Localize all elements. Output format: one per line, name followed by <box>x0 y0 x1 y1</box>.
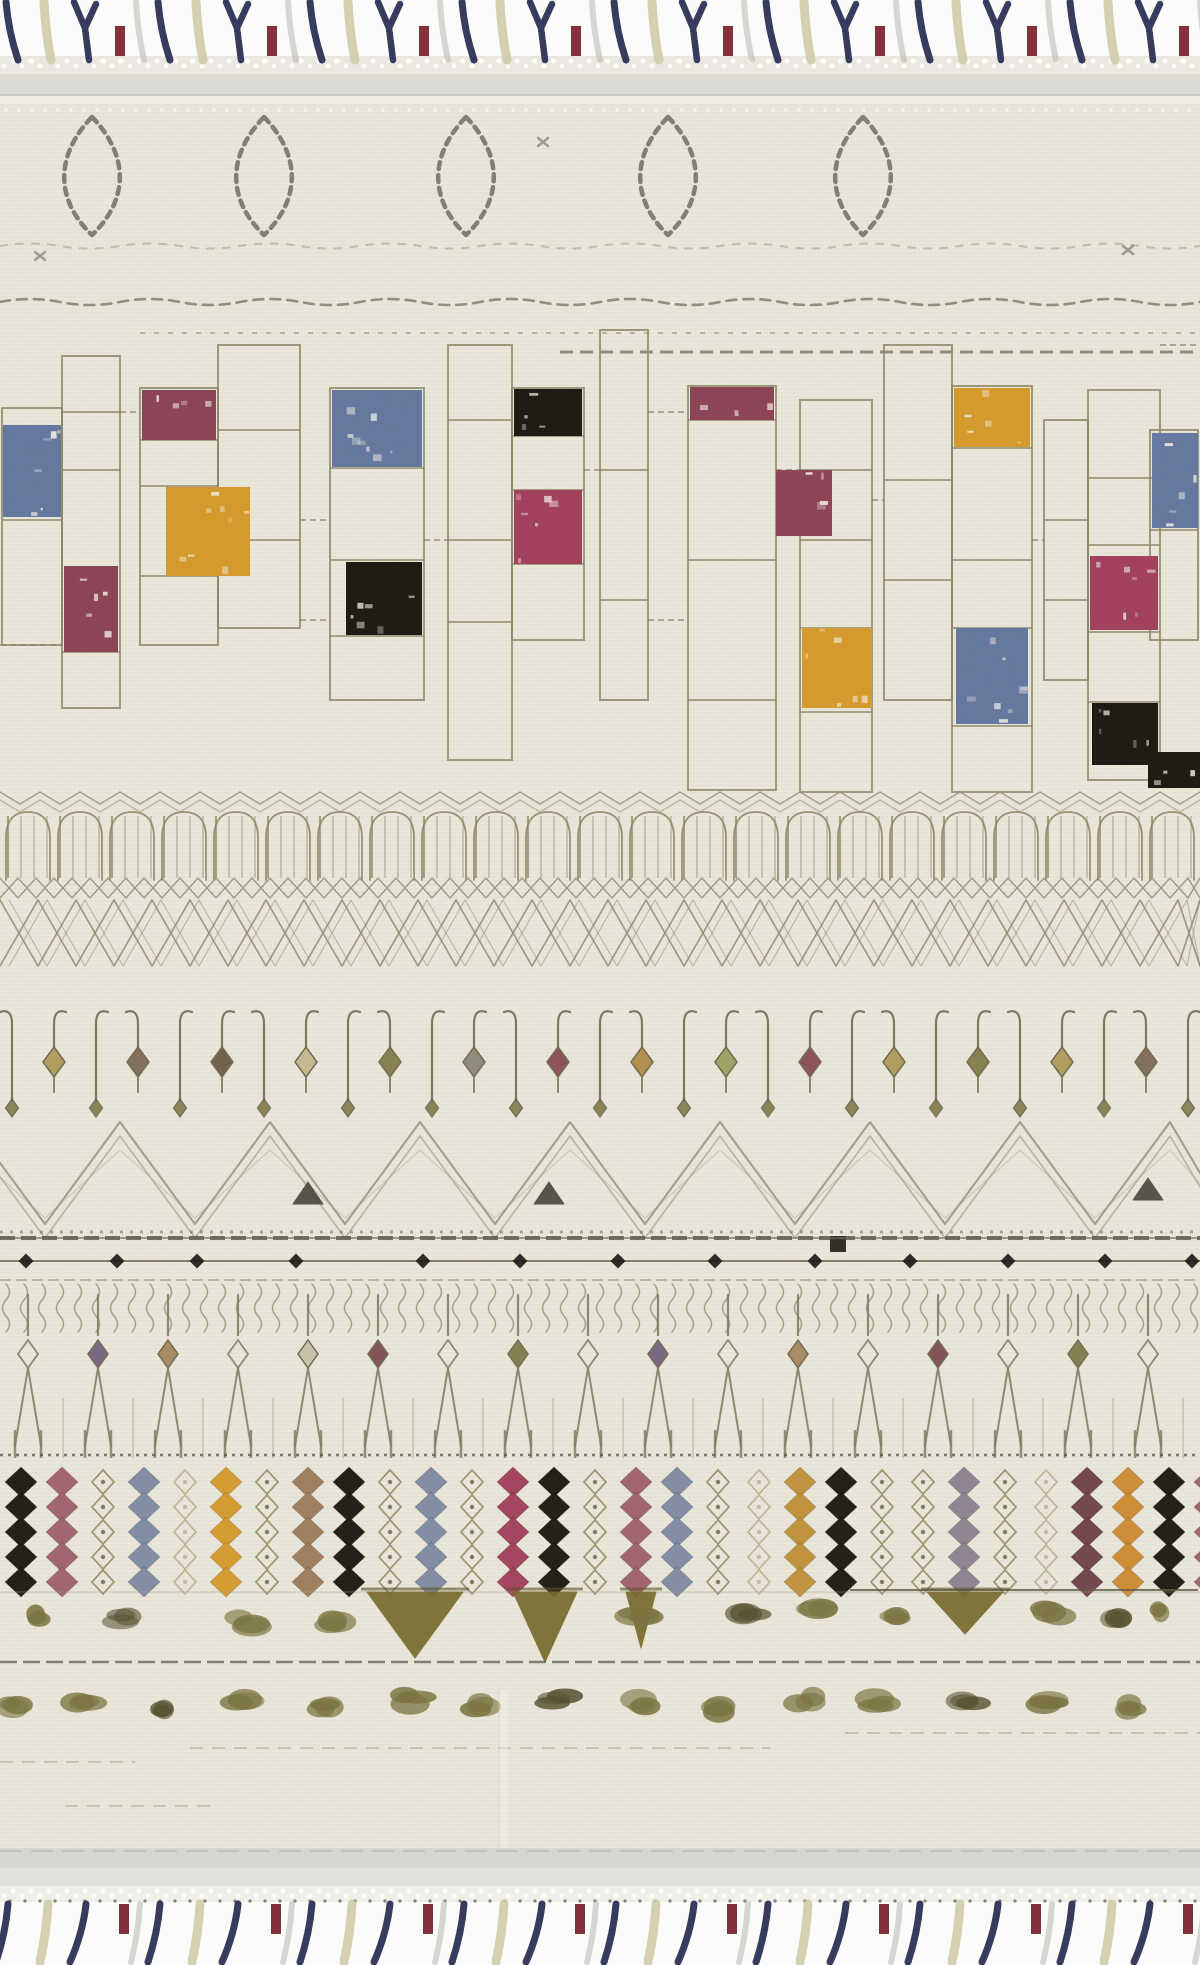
bottom-edge-binding <box>0 1848 1200 1903</box>
rug-photo <box>0 0 1200 1965</box>
rug-illustration <box>0 0 1200 1965</box>
grain-overlay <box>0 104 1200 1848</box>
top-edge-binding <box>0 56 1200 112</box>
